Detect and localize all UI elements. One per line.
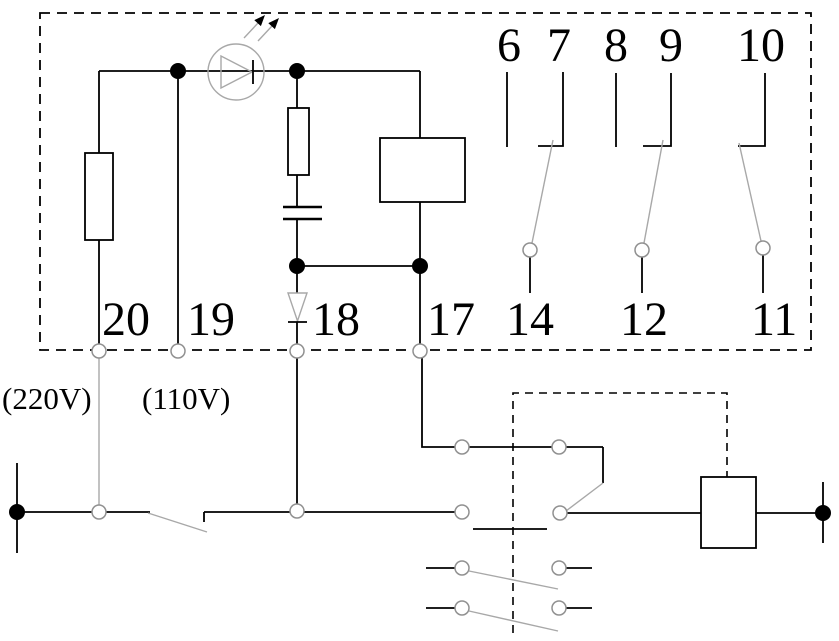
blade-contact-14 [532,140,553,243]
blade-contact-12 [644,140,663,243]
stub-9 [643,73,671,146]
resistor-2 [288,108,309,175]
junction-dot [289,258,305,274]
label-terminal-8: 8 [604,19,628,72]
row1-circle-right [552,440,566,454]
terminal-labels: 6 7 8 9 10 20 19 18 17 14 12 11 (220V) (… [2,19,797,416]
terminal-circle-18 [290,344,304,358]
label-terminal-10: 10 [737,19,785,72]
left-rail-node [9,504,25,520]
terminal-circle-17 [413,344,427,358]
label-voltage-110: (110V) [142,381,230,416]
junction-dot [412,258,428,274]
contact-circle-14 [523,243,537,257]
row2-circle-left [455,505,469,519]
resistor-1 [85,153,113,240]
label-terminal-20: 20 [102,293,150,346]
bus-circle-220v [92,505,106,519]
row2-circle-right [553,506,567,520]
stub-10 [738,73,765,146]
row1-circle-left [455,440,469,454]
label-terminal-7: 7 [547,19,571,72]
led-arrow1-shaft [244,23,258,38]
blade-contact-11 [739,143,761,241]
label-terminal-6: 6 [497,19,521,72]
label-terminal-9: 9 [659,19,683,72]
upper-contact-stubs [507,72,765,293]
diode [288,293,307,322]
led-arrow2-shaft [258,26,272,41]
label-terminal-17: 17 [427,293,475,346]
relay-operator [701,477,756,548]
led-circle [208,44,264,100]
row4-circle-right [552,601,566,615]
terminal-circle-20 [92,344,106,358]
knife-switch-blade [148,513,207,532]
label-terminal-18: 18 [312,293,360,346]
diode-triangle [288,293,307,321]
label-terminal-14: 14 [506,293,554,346]
capacitor [283,207,322,219]
schematic-canvas: 6 7 8 9 10 20 19 18 17 14 12 11 (220V) (… [0,0,839,641]
relay-coil [380,138,465,202]
junction-dot [289,63,305,79]
contact-circle-11 [756,241,770,255]
junction-dot [170,63,186,79]
contact-circle-12 [635,243,649,257]
row4-circle-left [455,601,469,615]
label-terminal-12: 12 [620,293,668,346]
label-voltage-220: (220V) [2,381,92,416]
right-rail-node [815,505,831,521]
led-indicator [208,15,279,100]
bus-circle-18 [290,504,304,518]
row3-circle-right [552,561,566,575]
changeover-blade [566,483,603,511]
stub-7 [538,72,563,146]
label-terminal-11: 11 [751,293,797,346]
terminal-circle-19 [171,344,185,358]
led-triangle [221,56,252,88]
row3-circle-left [455,561,469,575]
relay-schematic-diagram: 6 7 8 9 10 20 19 18 17 14 12 11 (220V) (… [0,0,839,641]
label-terminal-19: 19 [187,293,235,346]
